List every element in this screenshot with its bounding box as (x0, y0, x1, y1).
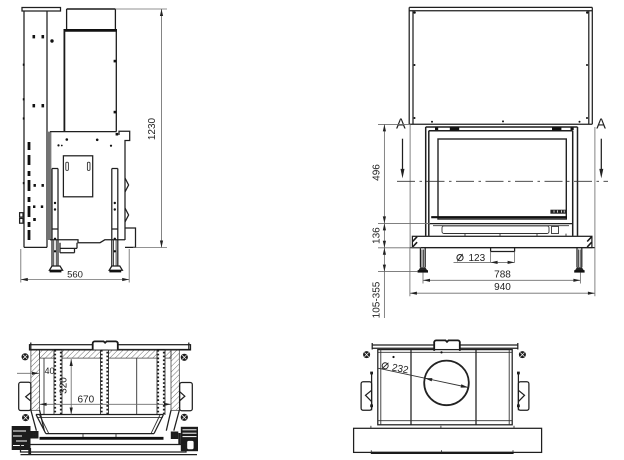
svg-text:1230: 1230 (147, 117, 158, 140)
svg-text:560: 560 (67, 269, 83, 280)
svg-text:788: 788 (494, 269, 511, 280)
svg-text:670: 670 (77, 395, 94, 406)
svg-text:A: A (596, 117, 606, 133)
svg-text:496: 496 (372, 164, 383, 181)
svg-text:H: H (173, 434, 177, 440)
svg-text:136: 136 (372, 227, 383, 244)
svg-text:123: 123 (469, 253, 486, 264)
svg-text:320: 320 (59, 377, 70, 394)
svg-text:940: 940 (494, 282, 511, 293)
svg-text:105-355: 105-355 (372, 281, 383, 318)
svg-text:H: H (32, 433, 36, 439)
svg-text:40: 40 (45, 366, 55, 376)
